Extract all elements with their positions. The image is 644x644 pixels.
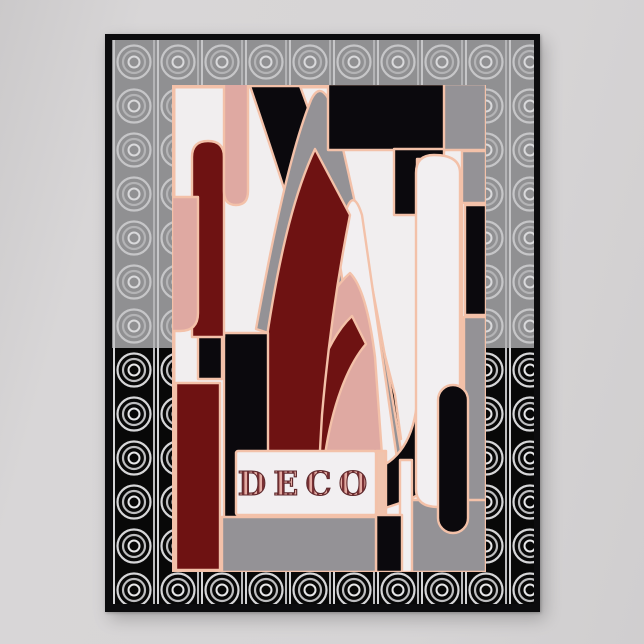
shape-maroon-rect — [176, 383, 220, 570]
shape-black-square — [198, 333, 222, 379]
framed-deco-poster: DECO — [105, 34, 540, 612]
wall-background: { "artwork": { "label": "DECO", "style_d… — [0, 0, 644, 644]
shape-gray-box — [222, 517, 376, 572]
shape-pink-bar — [224, 85, 248, 205]
artwork-svg: DECO — [172, 85, 486, 572]
shape-pink-round-bar — [172, 197, 198, 331]
shape-black-topright — [328, 85, 446, 150]
shape-gray-topright — [444, 85, 486, 150]
shape-pink-divider — [376, 451, 386, 515]
shape-gray-strip — [462, 151, 486, 203]
shape-black-right-edge — [465, 205, 486, 315]
abstract-art-panel: DECO — [172, 85, 486, 572]
shape-black-bottom-block — [376, 515, 402, 572]
deco-label-text: DECO — [238, 464, 375, 503]
shape-black-capsule — [438, 385, 468, 533]
